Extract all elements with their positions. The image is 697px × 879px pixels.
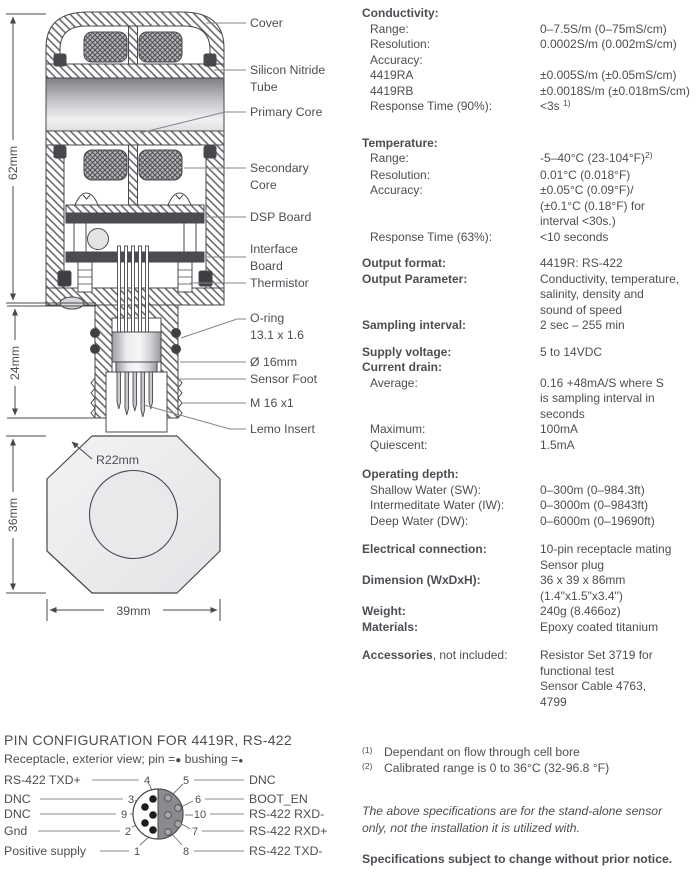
spec-row: Range:0–7.5S/m (0–75mS/cm) — [362, 22, 697, 38]
spec-label: Output format: — [362, 256, 540, 272]
pin-label-right: RS-422 RXD- — [249, 807, 324, 821]
sensor-bottom-view: R22mm — [47, 436, 220, 593]
pin-label-left: Positive supply — [4, 844, 87, 858]
bushing-bullet-icon: ● — [238, 756, 243, 765]
spec-label: Resolution: — [362, 37, 540, 53]
disclaimer-note: The above specifications are for the sta… — [362, 803, 697, 836]
spec-value: 5 to 14VDC — [540, 345, 697, 361]
spec-label: Quiescent: — [362, 438, 540, 454]
spec-label: Current drain: — [362, 360, 540, 376]
spec-label: Accuracy: — [362, 183, 540, 230]
spec-value: 0.0002S/m (0.002mS/cm) — [540, 37, 697, 53]
spec-row: Shallow Water (SW):0–300m (0–984.3ft) — [362, 483, 697, 499]
spec-row: Output Parameter:Conductivity, temperatu… — [362, 272, 697, 319]
label-cover: Cover — [250, 16, 283, 30]
spec-row: Conductivity: — [362, 6, 697, 22]
label-r22: R22mm — [96, 453, 139, 467]
spec-value: <10 seconds — [540, 230, 697, 246]
dim-62mm: 62mm — [6, 146, 20, 180]
pin-label-left: DNC — [4, 807, 31, 821]
spec-label: Temperature: — [362, 136, 540, 152]
spec-label: Operating depth: — [362, 467, 540, 483]
pin-number: 1 — [134, 846, 140, 858]
spec-label: Electrical connection: — [362, 542, 540, 573]
spec-row: Dimension (WxDxH):36 x 39 x 86mm(1.4"x1.… — [362, 573, 697, 604]
spec-value: 0–7.5S/m (0–75mS/cm) — [540, 22, 697, 38]
spec-row: Current drain: — [362, 360, 697, 376]
footnote: (1) Dependant on flow through cell bore — [362, 744, 697, 760]
spec-label: Resolution: — [362, 168, 540, 184]
spec-value: Resistor Set 3719 forfunctional testSens… — [540, 648, 697, 710]
spec-row: Accuracy:±0.05°C (0.09°F)/(±0.1°C (0.18°… — [362, 183, 697, 230]
spec-label: 4419RB — [362, 84, 540, 100]
spec-section: Supply voltage:5 to 14VDCCurrent drain:A… — [362, 345, 697, 454]
spec-label: Supply voltage: — [362, 345, 540, 361]
spec-row: Accessories, not included:Resistor Set 3… — [362, 648, 697, 710]
label-tube-1: Silicon Nitride — [250, 63, 325, 77]
spec-row: Average:0.16 +48mA/S where Sis sampling … — [362, 376, 697, 423]
sensor-foot — [91, 246, 183, 432]
pin-label-right: BOOT_EN — [249, 792, 308, 806]
footnote-text: Calibrated range is 0 to 36°C (32-96.8 °… — [384, 760, 609, 776]
spec-row: 4419RA±0.005S/m (±0.05mS/cm) — [362, 68, 697, 84]
pin-number: 5 — [183, 775, 189, 787]
spec-row: Output format:4419R: RS-422 — [362, 256, 697, 272]
spec-row: Resolution:0.01°C (0.018°F) — [362, 168, 697, 184]
spec-label: Sampling interval: — [362, 318, 540, 334]
spec-label: Weight: — [362, 604, 540, 620]
oring-shape — [172, 345, 181, 354]
label-oring-2: 13.1 x 1.6 — [250, 328, 304, 342]
spec-row: Temperature: — [362, 136, 697, 152]
specs-panel: Conductivity:Range:0–7.5S/m (0–75mS/cm)R… — [362, 6, 697, 710]
spec-label: Materials: — [362, 620, 540, 636]
spec-label: 4419RA — [362, 68, 540, 84]
spec-row: Supply voltage:5 to 14VDC — [362, 345, 697, 361]
spec-section: Conductivity:Range:0–7.5S/m (0–75mS/cm)R… — [362, 6, 697, 116]
spec-value: ±0.0018S/m (±0.018mS/cm) — [540, 84, 697, 100]
secondary-core-shape — [84, 150, 127, 180]
spec-section: Temperature:Range:-5–40°C (23-104°F)2)Re… — [362, 136, 697, 246]
pin-number: 7 — [192, 826, 198, 838]
label-tube-2: Tube — [250, 80, 278, 94]
pin-label-right: DNC — [249, 773, 276, 787]
spec-value: 0–6000m (0–19690ft) — [540, 514, 697, 530]
spec-value: 0–3000m (0–9843ft) — [540, 498, 697, 514]
label-diameter: Ø 16mm — [250, 355, 297, 369]
spec-value: 2 sec – 255 min — [540, 318, 697, 334]
notes-block: (1) Dependant on flow through cell bore … — [362, 744, 697, 867]
spec-label: Maximum: — [362, 422, 540, 438]
sensor-body — [46, 12, 224, 309]
spec-value: <3s 1) — [540, 99, 697, 116]
spec-value: 4419R: RS-422 — [540, 256, 697, 272]
spec-label: Range: — [362, 22, 540, 38]
label-primary-core: Primary Core — [250, 105, 323, 119]
oring-shape — [172, 329, 181, 338]
part-labels: Cover Silicon Nitride Tube Primary Core … — [250, 16, 325, 436]
dim-24mm: 24mm — [8, 346, 22, 380]
spec-row: Operating depth: — [362, 467, 697, 483]
spec-row: Sampling interval:2 sec – 255 min — [362, 318, 697, 334]
bore-circle — [90, 471, 178, 559]
oring-shape — [91, 345, 100, 354]
spec-section: Electrical connection:10-pin receptacle … — [362, 542, 697, 635]
spec-row: Response Time (90%):<3s 1) — [362, 99, 697, 116]
label-interface-1: Interface — [250, 242, 298, 256]
spec-row: Accuracy: — [362, 53, 697, 69]
pin-number: 4 — [144, 775, 150, 787]
interface-board-shape — [66, 252, 204, 262]
label-lemo-insert: Lemo Insert — [250, 422, 316, 436]
primary-core-shape — [139, 32, 182, 62]
pin-configuration: PIN CONFIGURATION FOR 4419R, RS-422 Rece… — [4, 731, 356, 872]
label-oring-1: O-ring — [250, 311, 284, 325]
spec-label: Accessories, not included: — [362, 648, 540, 710]
spec-label: Output Parameter: — [362, 272, 540, 319]
pin-number: 3 — [128, 794, 134, 806]
spec-row: Materials:Epoxy coated titanium — [362, 620, 697, 636]
label-interface-2: Board — [250, 259, 283, 273]
spec-value: 0–300m (0–984.3ft) — [540, 483, 697, 499]
spec-value: 1.5mA — [540, 438, 697, 454]
label-dsp-board: DSP Board — [250, 210, 311, 224]
spec-value: Conductivity, temperature,salinity, dens… — [540, 272, 697, 319]
dim-36mm: 36mm — [6, 498, 20, 532]
label-secondary-1: Secondary — [250, 161, 310, 175]
oring-shape — [91, 329, 100, 338]
pin-label-right: RS-422 TXD- — [249, 844, 323, 858]
footnote-marker: (2) — [362, 758, 384, 774]
spec-label: Intermeditate Water (IW): — [362, 498, 540, 514]
spec-value: ±0.05°C (0.09°F)/(±0.1°C (0.18°F) forint… — [540, 183, 697, 230]
spec-value: 100mA — [540, 422, 697, 438]
spec-row: 4419RB±0.0018S/m (±0.018mS/cm) — [362, 84, 697, 100]
pin-config-title: PIN CONFIGURATION FOR 4419R, RS-422 — [4, 731, 356, 749]
pin-label-left: Gnd — [4, 824, 27, 838]
spec-value: 0.16 +48mA/S where Sis sampling interval… — [540, 376, 697, 423]
spec-section: Operating depth:Shallow Water (SW):0–300… — [362, 467, 697, 529]
spec-label: Response Time (63%): — [362, 230, 540, 246]
change-notice: Specifications subject to change without… — [362, 851, 697, 867]
spec-row: Range:-5–40°C (23-104°F)2) — [362, 151, 697, 168]
spec-row: Intermeditate Water (IW):0–3000m (0–9843… — [362, 498, 697, 514]
label-thermistor: Thermistor — [250, 276, 309, 290]
pin-number: 8 — [183, 846, 189, 858]
label-sensor-foot: Sensor Foot — [250, 372, 318, 386]
spec-row: Resolution:0.0002S/m (0.002mS/cm) — [362, 37, 697, 53]
spec-value: ±0.005S/m (±0.05mS/cm) — [540, 68, 697, 84]
spec-value: Epoxy coated titanium — [540, 620, 697, 636]
spec-label: Shallow Water (SW): — [362, 483, 540, 499]
footnote: (2) Calibrated range is 0 to 36°C (32-96… — [362, 760, 697, 776]
sensor-diagram: R22mm Cover Silicon Nitride Tube Primary… — [0, 0, 360, 635]
spec-label: Average: — [362, 376, 540, 423]
footnote-text: Dependant on flow through cell bore — [384, 744, 580, 760]
datasheet-page: R22mm Cover Silicon Nitride Tube Primary… — [0, 0, 697, 879]
pin-label-left: DNC — [4, 792, 31, 806]
connector-diagram: 4 3 9 2 1 5 6 10 7 8 RS-422 TXD+ DNC DNC… — [4, 772, 353, 872]
secondary-core-shape — [139, 150, 182, 180]
spec-label: Deep Water (DW): — [362, 514, 540, 530]
spec-row: Deep Water (DW):0–6000m (0–19690ft) — [362, 514, 697, 530]
footnote-marker: (1) — [362, 742, 384, 758]
spec-row: Weight:240g (8.466oz) — [362, 604, 697, 620]
spec-label: Range: — [362, 151, 540, 168]
spec-label: Conductivity: — [362, 6, 540, 22]
spec-row: Response Time (63%):<10 seconds — [362, 230, 697, 246]
pin-number: 10 — [194, 809, 206, 821]
spec-row: Electrical connection:10-pin receptacle … — [362, 542, 697, 573]
spec-value: 0.01°C (0.018°F) — [540, 168, 697, 184]
spec-row: Quiescent:1.5mA — [362, 438, 697, 454]
spec-label: Dimension (WxDxH): — [362, 573, 540, 604]
dim-39mm: 39mm — [116, 604, 150, 618]
pin-number: 9 — [121, 809, 127, 821]
pin-number: 2 — [125, 826, 131, 838]
component-circle — [88, 229, 109, 250]
pin-label-left: RS-422 TXD+ — [4, 773, 81, 787]
primary-core-shape — [84, 32, 127, 62]
spec-value: 36 x 39 x 86mm(1.4"x1.5"x3.4") — [540, 573, 697, 604]
spec-label: Response Time (90%): — [362, 99, 540, 116]
pin-number: 6 — [195, 794, 201, 806]
spec-value: 240g (8.466oz) — [540, 604, 697, 620]
spec-value: 10-pin receptacle matingSensor plug — [540, 542, 697, 573]
spec-value: -5–40°C (23-104°F)2) — [540, 151, 697, 168]
label-thread: M 16 x1 — [250, 396, 294, 410]
spec-section: Accessories, not included:Resistor Set 3… — [362, 648, 697, 710]
label-secondary-2: Core — [250, 178, 277, 192]
spec-row: Maximum:100mA — [362, 422, 697, 438]
pin-config-legend: Receptacle, exterior view; pin =● bushin… — [4, 751, 356, 769]
spec-section: Output format:4419R: RS-422Output Parame… — [362, 256, 697, 334]
dsp-board-shape — [66, 213, 204, 223]
spec-label: Accuracy: — [362, 53, 540, 69]
pin-label-right: RS-422 RXD+ — [249, 824, 327, 838]
